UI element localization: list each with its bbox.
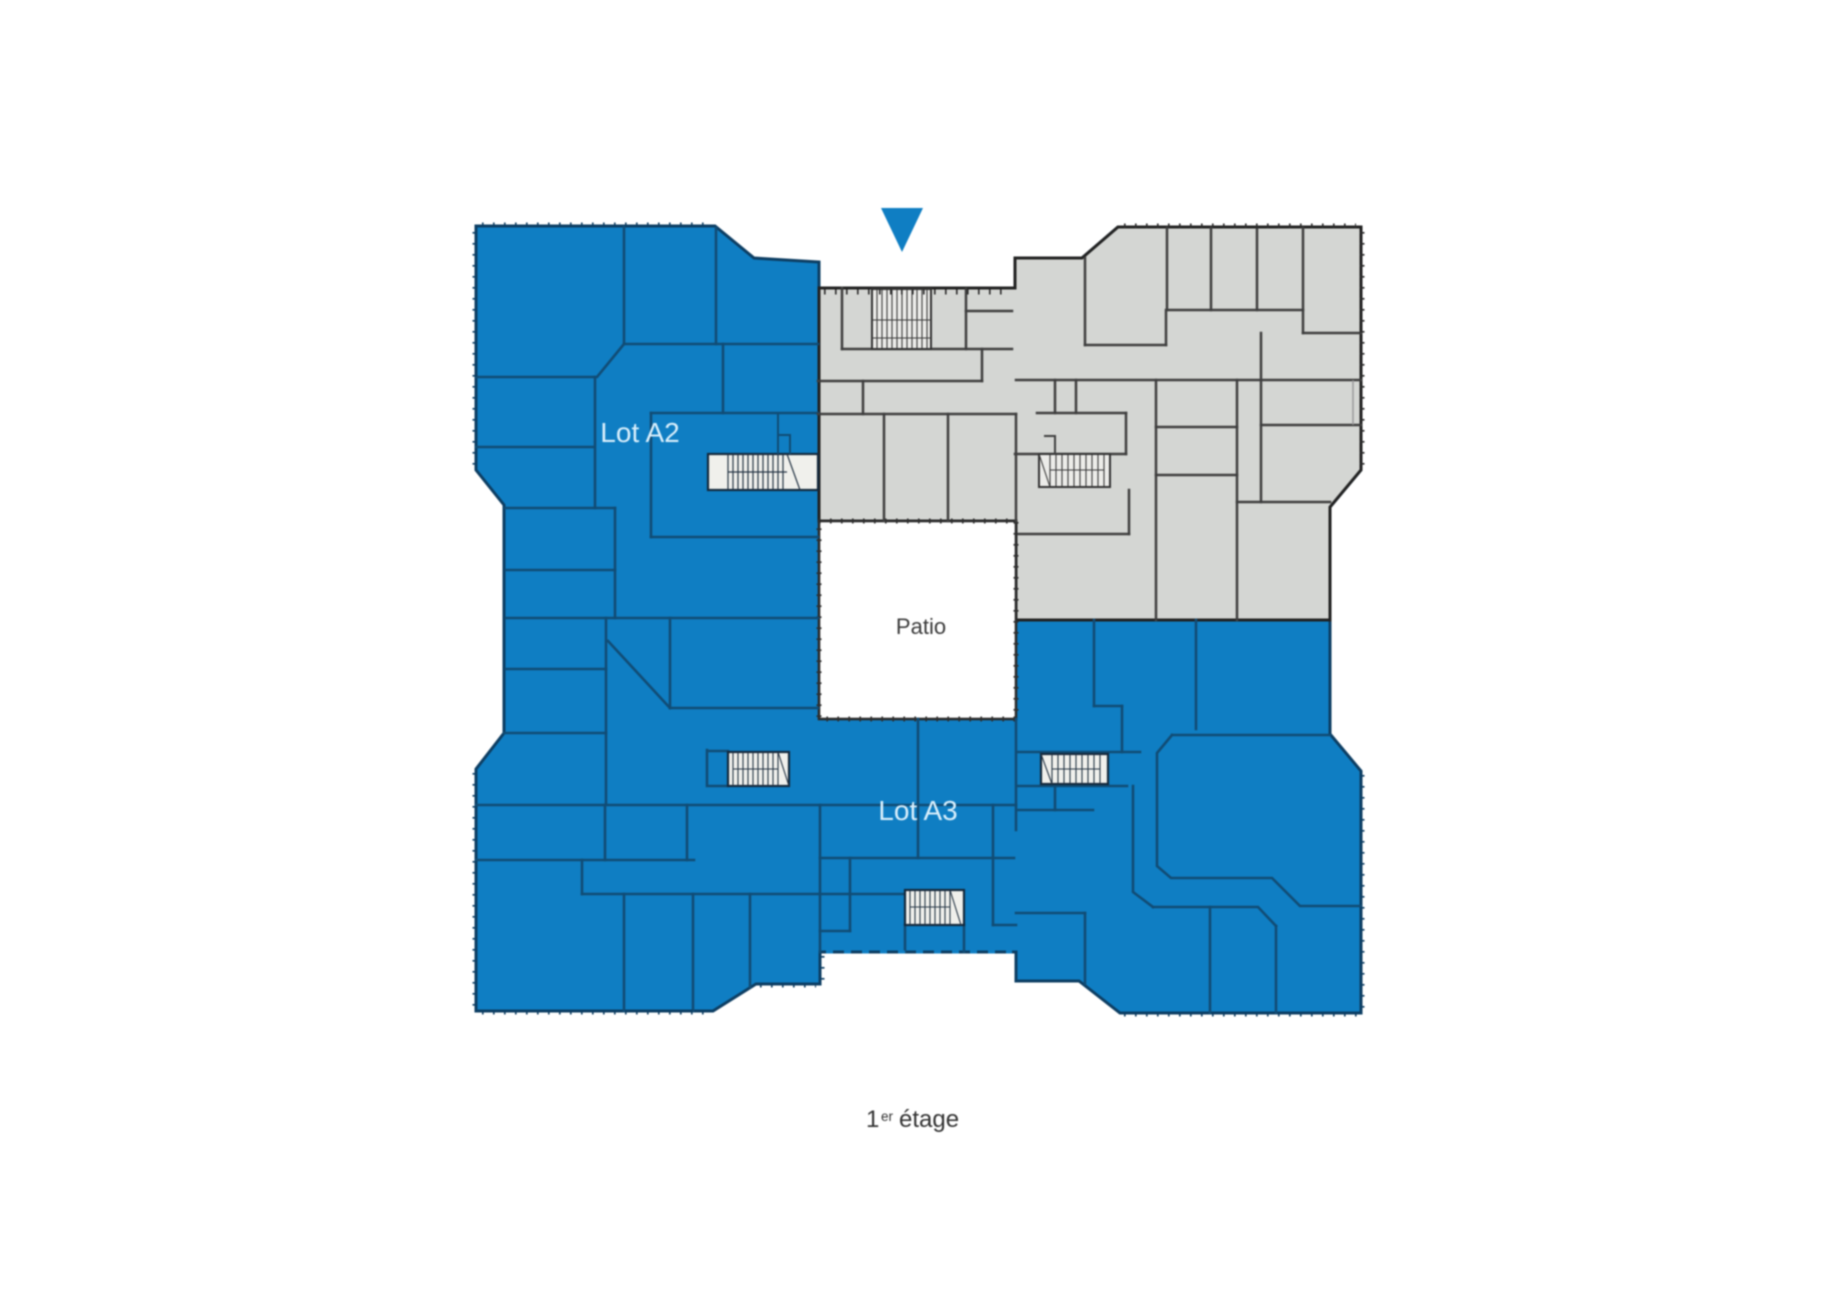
- svg-text:1erétage: 1erétage: [866, 1106, 959, 1133]
- svg-text:Lot A2: Lot A2: [600, 417, 679, 448]
- svg-text:Lot A3: Lot A3: [878, 795, 957, 826]
- svg-text:Patio: Patio: [896, 614, 946, 639]
